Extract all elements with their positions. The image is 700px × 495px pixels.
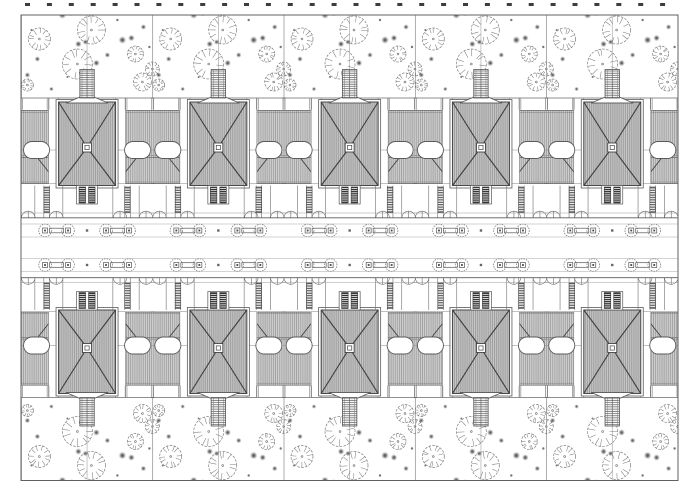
- tree-icon: [21, 79, 33, 91]
- garden-stair: [605, 70, 619, 99]
- garden-stair: [80, 398, 94, 427]
- bush-icon: [429, 434, 434, 439]
- bush-icon: [356, 430, 362, 436]
- street-tree-pair: [564, 224, 661, 237]
- bush-icon: [298, 57, 303, 62]
- tree-icon: [160, 28, 182, 50]
- bush-icon: [513, 37, 520, 44]
- tree-icon: [471, 452, 499, 480]
- hip-roof: [319, 308, 381, 397]
- tree-icon: [77, 452, 105, 480]
- tree-icon: [153, 405, 165, 417]
- street-tree-pair: [170, 259, 267, 272]
- street-tree-pair: [170, 224, 267, 237]
- bush-icon: [181, 405, 185, 409]
- bush-icon: [75, 41, 81, 47]
- hip-roof: [56, 308, 118, 397]
- bush-icon: [25, 418, 30, 423]
- garden-stair: [211, 398, 225, 427]
- street-tree-pair: [301, 224, 398, 237]
- garden-stair: [342, 398, 356, 427]
- bush-icon: [260, 35, 266, 41]
- garden-stair: [605, 398, 619, 427]
- hip-roof: [319, 100, 381, 189]
- bush-icon: [338, 41, 344, 47]
- tree-icon: [340, 16, 368, 44]
- hip-roof: [581, 308, 643, 397]
- bush-icon: [630, 438, 635, 443]
- top-edge-dashes: [25, 3, 665, 6]
- bush-icon: [368, 53, 373, 58]
- house-unit: [19, 10, 159, 237]
- tree-icon: [603, 452, 631, 480]
- tree-icon: [153, 79, 165, 91]
- house-unit: [413, 259, 553, 486]
- tree-icon: [547, 79, 559, 91]
- bush-icon: [666, 466, 671, 471]
- bush-icon: [601, 41, 607, 47]
- tree-icon: [415, 405, 427, 417]
- street-tree-pair: [39, 224, 136, 237]
- bush-icon: [644, 37, 651, 44]
- bush-icon: [513, 452, 520, 459]
- bush-icon: [236, 438, 241, 443]
- tree-icon: [471, 16, 499, 44]
- bush-icon: [391, 455, 397, 461]
- bush-icon: [391, 35, 397, 41]
- bush-icon: [312, 405, 316, 409]
- house-facade: [413, 278, 548, 311]
- bush-icon: [260, 455, 266, 461]
- bush-icon: [25, 73, 30, 78]
- bush-icon: [575, 405, 579, 409]
- street-tree-pair: [564, 259, 661, 272]
- house-facade: [545, 278, 680, 311]
- hip-roof: [450, 308, 512, 397]
- tree-icon: [284, 405, 296, 417]
- tree-icon: [77, 16, 105, 44]
- tree-icon: [653, 434, 669, 450]
- hip-roof: [187, 308, 249, 397]
- tree-icon: [554, 446, 576, 468]
- bush-icon: [272, 25, 277, 30]
- house-facade: [19, 278, 154, 311]
- tree-icon: [284, 79, 296, 91]
- tree-icon: [547, 405, 559, 417]
- garden-stair: [80, 70, 94, 99]
- bush-icon: [207, 41, 213, 47]
- tree-icon: [396, 73, 414, 91]
- bush-icon: [156, 73, 161, 78]
- bush-icon: [49, 87, 53, 91]
- drawing-area: [19, 10, 684, 486]
- bush-icon: [250, 452, 257, 459]
- tree-icon: [133, 405, 151, 423]
- tree-icon: [527, 405, 545, 423]
- house-facade: [151, 278, 286, 311]
- tree-icon: [653, 46, 669, 62]
- tree-icon: [603, 16, 631, 44]
- housing-row-top: [19, 10, 684, 237]
- bush-icon: [429, 57, 434, 62]
- bush-icon: [522, 455, 528, 461]
- street-tree-pair: [433, 259, 530, 272]
- garden-stair: [474, 398, 488, 427]
- bush-icon: [225, 60, 231, 66]
- street-tree-pair: [301, 259, 398, 272]
- house-unit: [413, 10, 553, 237]
- bush-icon: [225, 430, 231, 436]
- tree-icon: [28, 446, 50, 468]
- tree-icon: [127, 46, 143, 62]
- tree-icon: [396, 405, 414, 423]
- tree-icon: [259, 434, 275, 450]
- bush-icon: [207, 449, 213, 455]
- house-facade: [545, 186, 680, 219]
- hip-roof: [56, 100, 118, 189]
- house-facade: [151, 186, 286, 219]
- bush-icon: [35, 434, 40, 439]
- garden-stair: [342, 70, 356, 99]
- house-unit: [282, 10, 422, 237]
- bush-icon: [166, 434, 171, 439]
- bush-icon: [382, 37, 389, 44]
- tree-icon: [160, 446, 182, 468]
- bush-icon: [550, 73, 555, 78]
- tree-icon: [422, 28, 444, 50]
- bush-icon: [443, 405, 447, 409]
- bush-icon: [356, 60, 362, 66]
- bush-icon: [141, 25, 146, 30]
- plan-canvas: [0, 0, 700, 495]
- tree-icon: [527, 73, 545, 91]
- bush-icon: [654, 35, 660, 41]
- bush-icon: [93, 60, 99, 66]
- bush-icon: [298, 434, 303, 439]
- bush-icon: [156, 418, 161, 423]
- bush-icon: [469, 449, 475, 455]
- bush-icon: [288, 418, 293, 423]
- bush-icon: [49, 405, 53, 409]
- hip-roof: [450, 100, 512, 189]
- bush-icon: [404, 25, 409, 30]
- house-unit: [282, 259, 422, 486]
- bush-icon: [181, 87, 185, 91]
- bush-icon: [630, 53, 635, 58]
- street-tree-pair: [433, 224, 530, 237]
- tree-icon: [259, 46, 275, 62]
- bush-icon: [535, 466, 540, 471]
- tree-icon: [291, 446, 313, 468]
- house-unit: [19, 259, 159, 486]
- bush-icon: [443, 87, 447, 91]
- bush-icon: [272, 466, 277, 471]
- house-unit: [545, 259, 685, 486]
- tree-icon: [521, 434, 537, 450]
- tree-icon: [209, 452, 237, 480]
- house-facade: [19, 186, 154, 219]
- tree-icon: [659, 73, 677, 91]
- bush-icon: [93, 430, 99, 436]
- bush-icon: [487, 60, 493, 66]
- bush-icon: [312, 87, 316, 91]
- bush-icon: [404, 466, 409, 471]
- bush-icon: [560, 434, 565, 439]
- garden-stair: [474, 70, 488, 99]
- bush-icon: [119, 37, 126, 44]
- tree-icon: [390, 46, 406, 62]
- house-facade: [413, 186, 548, 219]
- tree-icon: [265, 73, 283, 91]
- tree-icon: [21, 405, 33, 417]
- bush-icon: [522, 35, 528, 41]
- tree-icon: [521, 46, 537, 62]
- tree-icon: [390, 434, 406, 450]
- tree-icon: [28, 28, 50, 50]
- tree-icon: [291, 28, 313, 50]
- bush-icon: [35, 57, 40, 62]
- tree-icon: [340, 452, 368, 480]
- bush-icon: [550, 418, 555, 423]
- hip-roof: [581, 100, 643, 189]
- site-plan-drawing: [0, 0, 700, 495]
- bush-icon: [644, 452, 651, 459]
- bush-icon: [250, 37, 257, 44]
- bush-icon: [419, 418, 424, 423]
- hip-roof: [187, 100, 249, 189]
- garden-stair: [211, 70, 225, 99]
- street-tree-pair: [39, 259, 136, 272]
- bush-icon: [601, 449, 607, 455]
- housing-row-bottom: [19, 259, 684, 486]
- bush-icon: [469, 41, 475, 47]
- bush-icon: [288, 73, 293, 78]
- bush-icon: [560, 57, 565, 62]
- bush-icon: [499, 438, 504, 443]
- bush-icon: [166, 57, 171, 62]
- bush-icon: [338, 449, 344, 455]
- bush-icon: [141, 466, 146, 471]
- tree-icon: [209, 16, 237, 44]
- tree-icon: [659, 405, 677, 423]
- tree-icon: [127, 434, 143, 450]
- tree-icon: [265, 405, 283, 423]
- tree-icon: [554, 28, 576, 50]
- bush-icon: [75, 449, 81, 455]
- bush-icon: [128, 455, 134, 461]
- bush-icon: [128, 35, 134, 41]
- tree-icon: [133, 73, 151, 91]
- bush-icon: [535, 25, 540, 30]
- house-facade: [282, 186, 417, 219]
- bush-icon: [382, 452, 389, 459]
- house-unit: [151, 259, 291, 486]
- bush-icon: [654, 455, 660, 461]
- bush-icon: [119, 452, 126, 459]
- bush-icon: [619, 430, 625, 436]
- house-facade: [282, 278, 417, 311]
- bush-icon: [419, 73, 424, 78]
- tree-icon: [415, 79, 427, 91]
- house-unit: [151, 10, 291, 237]
- bush-icon: [575, 87, 579, 91]
- bush-icon: [666, 25, 671, 30]
- bush-icon: [105, 438, 110, 443]
- bush-icon: [619, 60, 625, 66]
- bush-icon: [105, 53, 110, 58]
- house-unit: [545, 10, 685, 237]
- bush-icon: [236, 53, 241, 58]
- tree-icon: [422, 446, 444, 468]
- bush-icon: [487, 430, 493, 436]
- bush-icon: [368, 438, 373, 443]
- bush-icon: [499, 53, 504, 58]
